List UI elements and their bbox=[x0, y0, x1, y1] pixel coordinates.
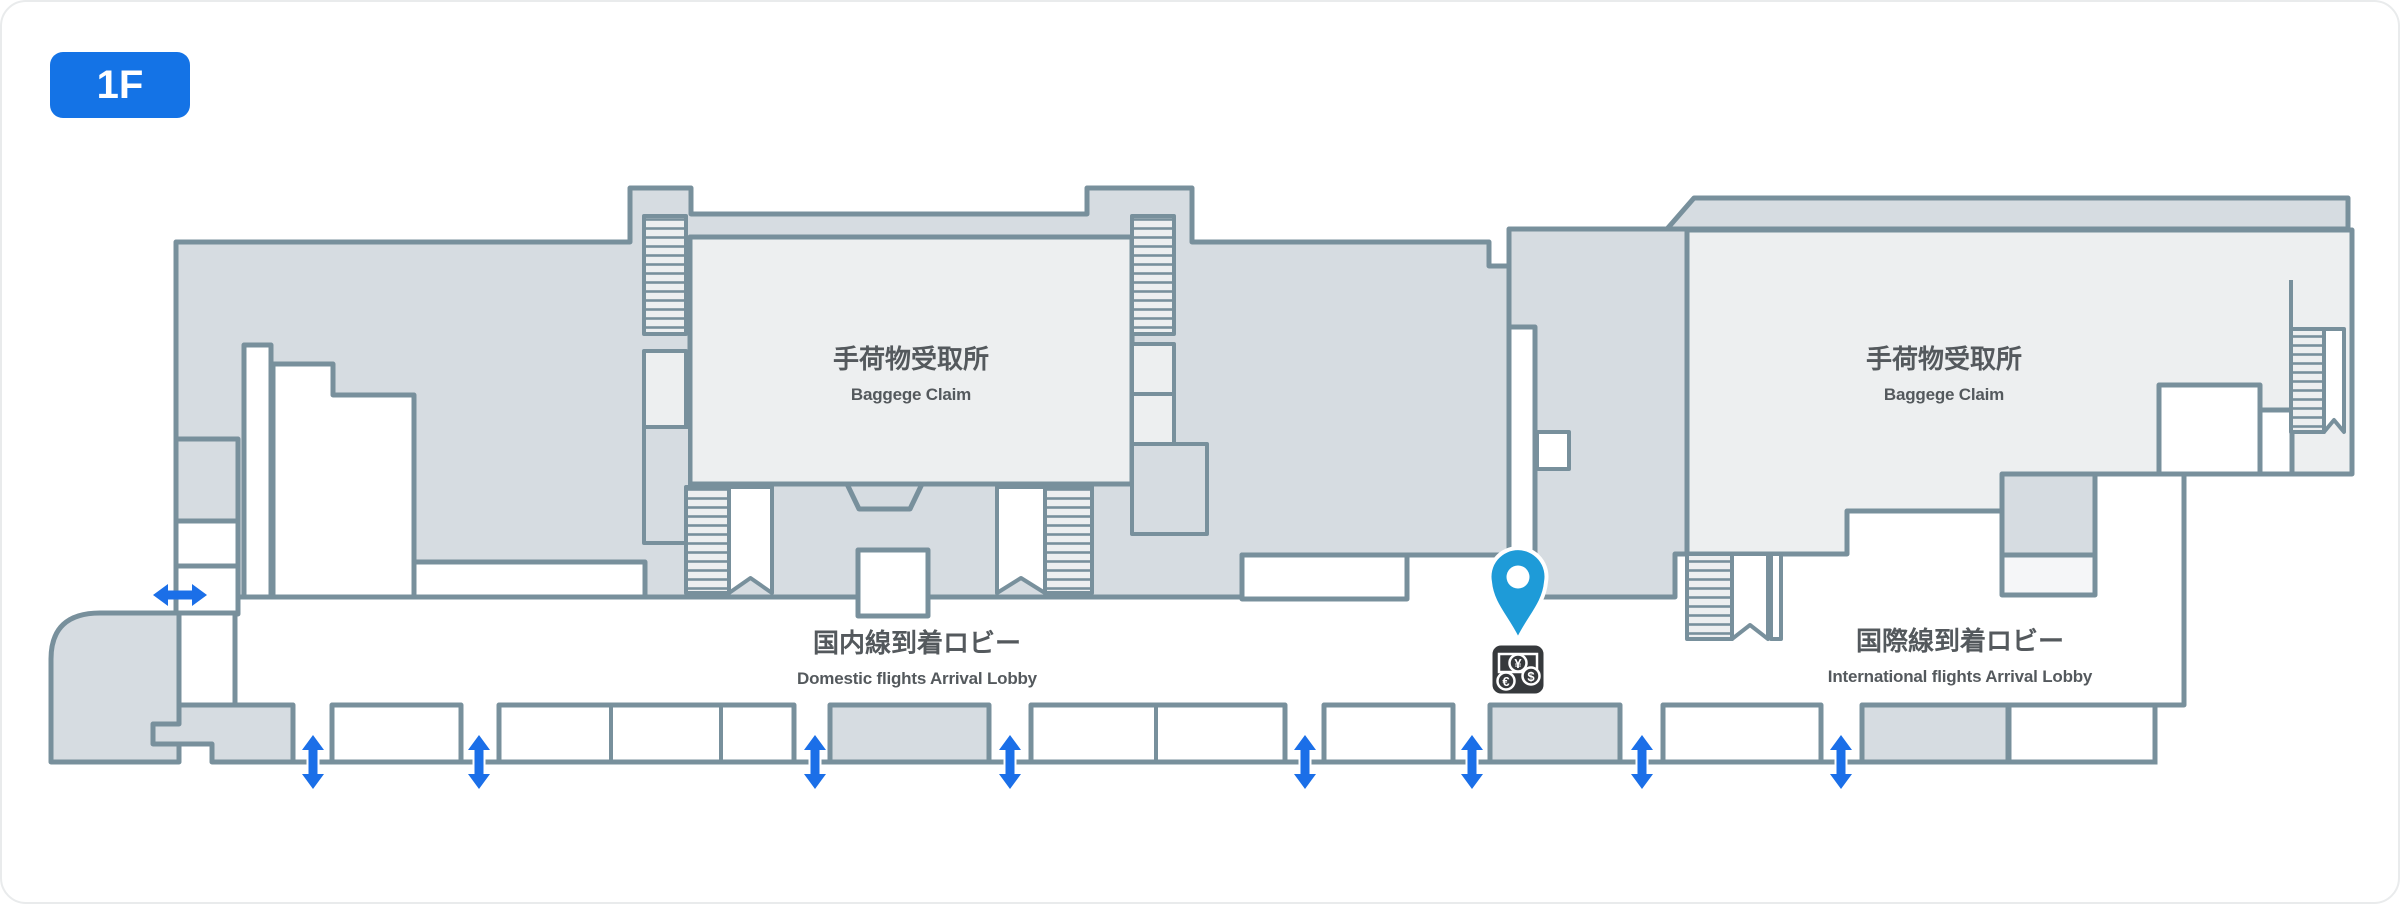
east-room-below-hall-2 bbox=[2002, 555, 2095, 595]
domestic-lobby-label-jp: 国内線到着ロビー bbox=[813, 628, 1021, 658]
international-lobby-label-jp: 国際線到着ロビー bbox=[1856, 626, 2064, 656]
stairs-below-hall-right-icon bbox=[1045, 487, 1092, 593]
entrance-box-9 bbox=[2009, 705, 2155, 762]
entrance-box-2 bbox=[499, 705, 794, 762]
east-block-notch bbox=[1537, 432, 1569, 469]
entrance-box-3 bbox=[830, 705, 989, 762]
yen-symbol: ¥ bbox=[1514, 656, 1522, 671]
room-below-middle-hall bbox=[1242, 555, 1407, 599]
entrance-box-1 bbox=[332, 705, 461, 762]
baggage-claim-left-label-en: Baggege Claim bbox=[851, 385, 971, 404]
room-left-of-hall-lower bbox=[644, 427, 690, 543]
east-wing-roof-band bbox=[1667, 198, 2348, 229]
entrance-box-7 bbox=[1663, 705, 1821, 762]
escalator-right-tower-icon bbox=[1132, 216, 1174, 334]
escalator-left-tower-icon bbox=[644, 216, 686, 334]
west-room-stack-white-1 bbox=[176, 521, 238, 566]
airport-floor-map: 手荷物受取所 Baggege Claim 手荷物受取所 Baggege Clai… bbox=[2, 2, 2400, 904]
corridor-west-l-shape bbox=[273, 364, 414, 597]
stair-lane-right bbox=[997, 487, 1045, 593]
entrance-box-6 bbox=[1490, 705, 1620, 762]
kiosk-room bbox=[858, 550, 928, 616]
east-inner-room-1 bbox=[2159, 385, 2260, 474]
east-inner-room-2 bbox=[2260, 410, 2292, 474]
east-wing-left-block bbox=[1509, 229, 1687, 597]
stair-lane-east-lower bbox=[1732, 554, 1768, 639]
stair-rail-east-lower bbox=[1771, 554, 1781, 639]
floor-badge[interactable]: 1F bbox=[50, 52, 190, 118]
location-pin-hole bbox=[1507, 566, 1530, 589]
floor-badge-label: 1F bbox=[97, 63, 144, 107]
baggage-belt-exit bbox=[847, 484, 922, 509]
corridor-west-vertical bbox=[244, 345, 271, 597]
room-below-center-hall bbox=[414, 562, 645, 597]
euro-symbol: € bbox=[1502, 674, 1509, 689]
stairs-below-hall-left-icon bbox=[686, 487, 729, 593]
terminal-west-wing bbox=[176, 188, 1509, 616]
room-right-of-hall-2 bbox=[1132, 394, 1174, 444]
room-right-of-hall-lower bbox=[1132, 444, 1207, 534]
stairs-east-lower-icon bbox=[1687, 554, 1732, 639]
entrance-box-5 bbox=[1324, 705, 1453, 762]
entrance-box-8 bbox=[1862, 705, 2008, 762]
east-room-below-hall bbox=[2002, 474, 2095, 555]
currency-exchange-icon[interactable]: ¥ $ € bbox=[1491, 644, 1545, 695]
room-left-of-hall bbox=[644, 351, 686, 427]
stair-lane-left bbox=[729, 487, 772, 593]
location-pin-icon[interactable] bbox=[1489, 548, 1546, 640]
location-marker[interactable] bbox=[1489, 548, 1546, 640]
domestic-lobby-label-en: Domestic flights Arrival Lobby bbox=[797, 669, 1038, 688]
floor-map-screen: 手荷物受取所 Baggege Claim 手荷物受取所 Baggege Clai… bbox=[0, 0, 2400, 904]
west-room-stack-white-2 bbox=[176, 566, 238, 614]
room-right-of-hall-1 bbox=[1132, 344, 1174, 394]
stairs-east-hall-icon bbox=[2291, 329, 2324, 432]
stair-lane-east-hall bbox=[2324, 329, 2344, 432]
dollar-symbol: $ bbox=[1527, 669, 1535, 684]
west-end-room bbox=[179, 613, 235, 705]
baggage-claim-right-label-en: Baggege Claim bbox=[1884, 385, 2004, 404]
baggage-claim-right-label-jp: 手荷物受取所 bbox=[1866, 344, 2022, 374]
west-room-stack-dark bbox=[176, 439, 238, 521]
international-lobby-label-en: International flights Arrival Lobby bbox=[1828, 667, 2093, 686]
baggage-claim-left-label-jp: 手荷物受取所 bbox=[833, 344, 989, 374]
lobby-east-end-wall bbox=[2155, 474, 2184, 705]
